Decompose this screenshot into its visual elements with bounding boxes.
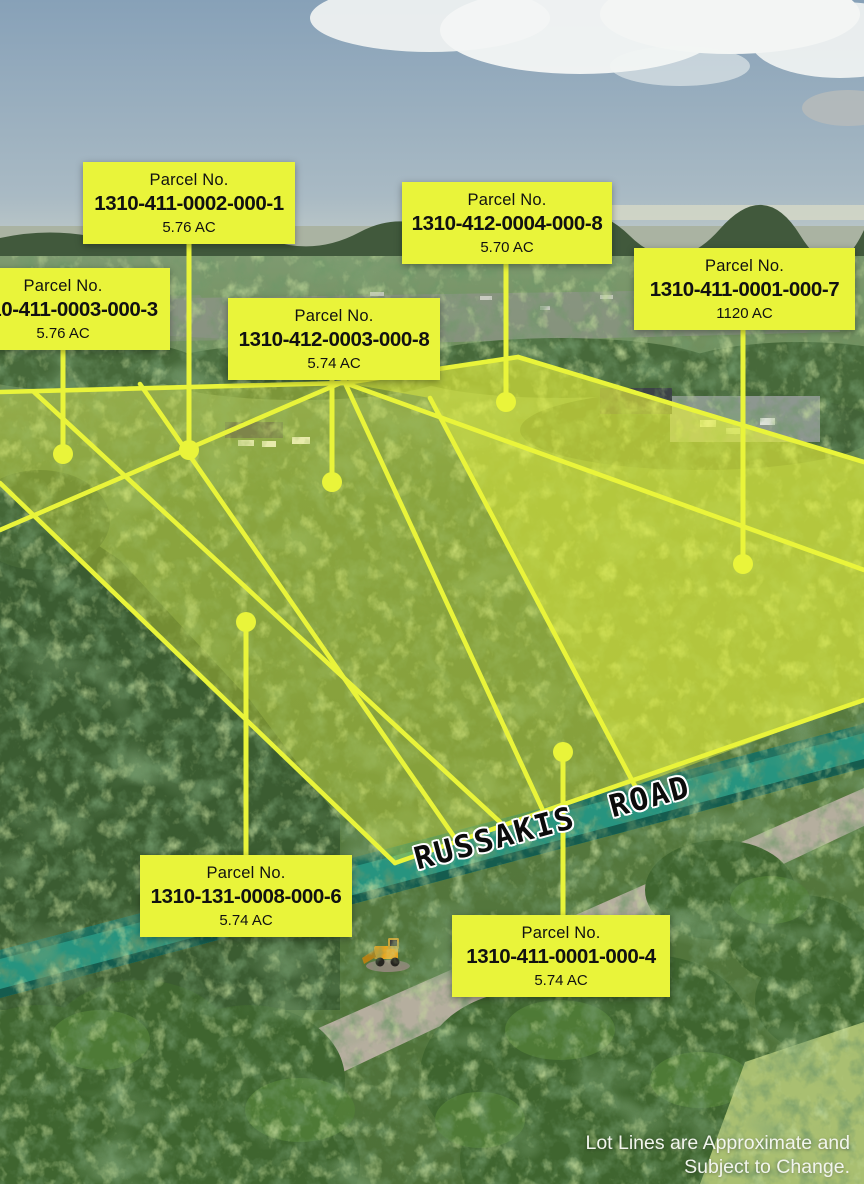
- parcel-number: 1310-412-0004-000-8: [408, 212, 606, 236]
- parcel-label-1310-131-0008-000-6: Parcel No. 1310-131-0008-000-6 5.74 AC: [140, 855, 352, 937]
- parcel-label-heading: Parcel No.: [408, 191, 606, 210]
- leader-dot-0002-000-1: [179, 440, 199, 460]
- leader-dot-0004-000-8: [496, 392, 516, 412]
- parcel-acreage: 5.74 AC: [458, 972, 664, 989]
- parcel-label-1310-412-0004-000-8: Parcel No. 1310-412-0004-000-8 5.70 AC: [402, 182, 612, 264]
- parcel-label-heading: Parcel No.: [640, 257, 849, 276]
- parcel-label-heading: Parcel No.: [234, 307, 434, 326]
- parcel-acreage: 5.76 AC: [89, 219, 289, 236]
- parcel-acreage: 5.74 AC: [234, 355, 434, 372]
- disclaimer-line-2: Subject to Change.: [585, 1156, 850, 1180]
- leader-dot-0008-000-6: [236, 612, 256, 632]
- disclaimer: Lot Lines are Approximate and Subject to…: [585, 1132, 850, 1180]
- leader-dot-0003-000-8: [322, 472, 342, 492]
- parcel-label-1310-412-0003-000-8: Parcel No. 1310-412-0003-000-8 5.74 AC: [228, 298, 440, 380]
- parcel-acreage: 5.74 AC: [146, 912, 346, 929]
- parcel-number: 1310-411-0002-000-1: [89, 192, 289, 216]
- parcel-label-heading: Parcel No.: [0, 277, 164, 296]
- parcel-label-heading: Parcel No.: [146, 864, 346, 883]
- parcel-label-1310-411-0001-000-4: Parcel No. 1310-411-0001-000-4 5.74 AC: [452, 915, 670, 997]
- leader-dot-0001-000-4: [553, 742, 573, 762]
- parcel-number: 1310-412-0003-000-8: [234, 328, 434, 352]
- aerial-parcel-map: Parcel No. 1310-411-0002-000-1 5.76 AC P…: [0, 0, 864, 1184]
- parcel-label-1310-411-0002-000-1: Parcel No. 1310-411-0002-000-1 5.76 AC: [83, 162, 295, 244]
- leader-dot-0003-000-3: [53, 444, 73, 464]
- parcel-number: 1310-131-0008-000-6: [146, 885, 346, 909]
- parcel-acreage: 5.70 AC: [408, 239, 606, 256]
- parcel-number: 1310-411-0003-000-3: [0, 298, 164, 322]
- parcel-label-1310-411-0001-000-7: Parcel No. 1310-411-0001-000-7 1120 AC: [634, 248, 855, 330]
- parcel-label-heading: Parcel No.: [89, 171, 289, 190]
- parcel-number: 1310-411-0001-000-4: [458, 945, 664, 969]
- parcel-number: 1310-411-0001-000-7: [640, 278, 849, 302]
- parcel-label-1310-411-0003-000-3: Parcel No. 1310-411-0003-000-3 5.76 AC: [0, 268, 170, 350]
- leader-dot-0001-000-7: [733, 554, 753, 574]
- parcel-acreage: 1120 AC: [640, 305, 849, 322]
- parcel-acreage: 5.76 AC: [0, 325, 164, 342]
- disclaimer-line-1: Lot Lines are Approximate and: [585, 1132, 850, 1156]
- parcel-label-heading: Parcel No.: [458, 924, 664, 943]
